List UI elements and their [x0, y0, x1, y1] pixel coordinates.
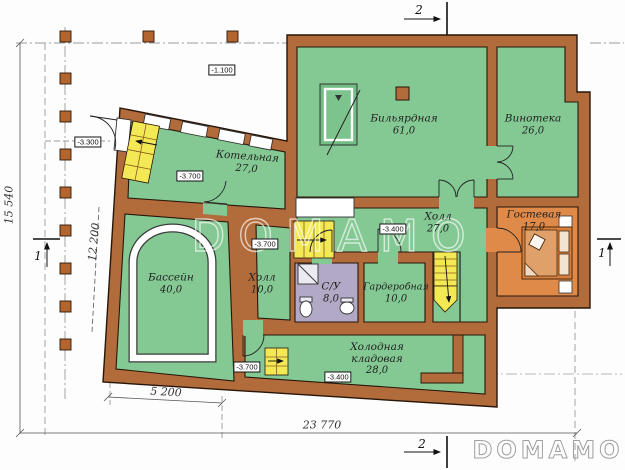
room-label-garderobnaya: Гардеробная10,0 — [363, 282, 429, 305]
column-marker — [60, 111, 71, 122]
room-label-cold-storage: Холоднаякладовая 28,0 — [350, 342, 404, 377]
sink-icon — [340, 302, 354, 314]
column-marker — [60, 339, 71, 350]
floor-plan-canvas: DOMAMO DOMAMO Бильярдная61,0 Винотека26,… — [0, 0, 625, 470]
bed-icon — [522, 227, 572, 279]
room-label-su: С/У8,0 — [321, 282, 340, 305]
room-label-hall27: Холл27,0 — [424, 212, 451, 235]
elevation-label-cold: -3.400 — [324, 372, 351, 383]
logo-domamo: DOMAMO — [472, 436, 623, 464]
elevation-label-terrace: -1.100 — [208, 65, 235, 76]
dimension-total-width: 23 770 — [303, 419, 342, 432]
column-pillar — [396, 87, 409, 100]
stairs-bottom — [265, 348, 288, 375]
sink-icon — [341, 298, 353, 302]
door-gap — [439, 196, 474, 209]
elevation-label-entry: -3.300 — [74, 137, 101, 148]
column-marker — [60, 301, 71, 312]
wall-niche — [559, 281, 572, 293]
billiard-table-icon — [320, 84, 360, 155]
column-marker — [60, 187, 71, 198]
column-marker — [60, 225, 71, 236]
column-marker — [227, 31, 238, 42]
section-2-top-label: 2 — [415, 3, 423, 17]
room-label-kotelnaya: Котельная27,0 — [215, 149, 280, 176]
elevation-label-bottom: -3.700 — [233, 362, 260, 373]
column-marker — [60, 73, 71, 84]
column-marker — [60, 31, 71, 42]
section-2-top-marker — [404, 2, 447, 39]
column-marker — [60, 149, 71, 160]
dimension-total-height: 15 540 — [3, 186, 16, 225]
section-2-bottom-label: 2 — [418, 437, 426, 451]
toilet-icon — [300, 301, 312, 317]
section-1-right-label: 1 — [598, 246, 606, 260]
dimension-pool-bottom: 5 200 — [150, 385, 182, 400]
room-label-gostevaya: Гостевая17,0 — [507, 210, 562, 233]
room-label-vinoteka: Винотека26,0 — [505, 114, 561, 137]
room-label-bassein: Бассейн40,0 — [148, 273, 194, 296]
elevation-label-boiler: -3.700 — [176, 171, 203, 182]
room-label-billiard: Бильярдная61,0 — [370, 114, 437, 137]
column-marker — [143, 31, 154, 42]
column-marker — [60, 263, 71, 274]
room-label-hall10: Холл10,0 — [248, 273, 275, 296]
elevation-label-hall-mid: -3.700 — [251, 239, 278, 250]
door-gap — [486, 228, 498, 252]
door-gap — [243, 320, 263, 336]
door-gap — [486, 146, 498, 179]
elevation-label-hall: -3.400 — [379, 224, 406, 235]
section-1-left-label: 1 — [34, 249, 42, 263]
